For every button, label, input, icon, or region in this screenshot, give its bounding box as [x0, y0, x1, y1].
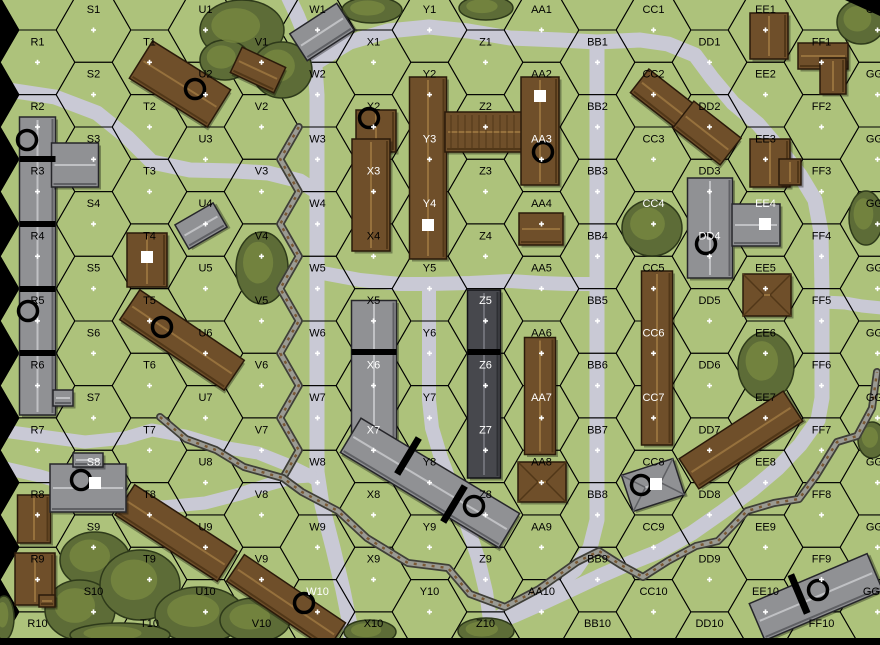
hex-label-X3: X3: [367, 166, 380, 178]
hex-label-EE10: EE10: [752, 586, 779, 598]
hex-label-X7: X7: [367, 424, 380, 436]
hex-label-BB1: BB1: [587, 36, 608, 48]
building-EE5: [743, 274, 794, 319]
hex-map-board[interactable]: R1R2R3R4R5R6R7R8R9R10S1S2S3S4S5S6S7S8S9S…: [0, 0, 880, 645]
hex-label-T5: T5: [143, 295, 156, 307]
hex-label-V5: V5: [255, 295, 268, 307]
hex-label-GG2: GG2: [866, 69, 880, 81]
hex-label-T3: T3: [143, 166, 156, 178]
hex-label-V9: V9: [255, 554, 268, 566]
hex-label-EE5: EE5: [755, 263, 776, 275]
hex-label-CC10: CC10: [639, 586, 667, 598]
hex-label-CC6: CC6: [642, 327, 664, 339]
hex-label-AA8: AA8: [531, 457, 552, 469]
hex-label-T2: T2: [143, 101, 156, 113]
hex-label-V1: V1: [255, 36, 268, 48]
hex-label-FF3: FF3: [812, 166, 832, 178]
hex-label-S5: S5: [87, 263, 100, 275]
hex-label-Z3: Z3: [479, 166, 492, 178]
hex-label-W10: W10: [306, 586, 329, 598]
map-window: R1R2R3R4R5R6R7R8R9R10S1S2S3S4S5S6S7S8S9S…: [0, 0, 880, 645]
building-R8: [18, 495, 54, 546]
rowhouse-wall-bar: [20, 286, 56, 292]
hex-label-Z2: Z2: [479, 101, 492, 113]
hex-label-R3: R3: [30, 166, 44, 178]
hex-label-DD8: DD8: [698, 489, 720, 501]
rowhouse-wall-bar: [20, 156, 56, 162]
hex-label-FF6: FF6: [812, 360, 832, 372]
rowhouse-wall-bar: [352, 349, 397, 355]
hex-label-DD3: DD3: [698, 166, 720, 178]
hex-label-T6: T6: [143, 360, 156, 372]
hex-label-Z10: Z10: [476, 618, 495, 630]
hex-label-FF1: FF1: [812, 36, 832, 48]
hex-label-V2: V2: [255, 101, 268, 113]
hex-label-DD9: DD9: [698, 554, 720, 566]
hex-label-DD6: DD6: [698, 360, 720, 372]
hex-label-DD4: DD4: [698, 230, 720, 242]
hex-label-W4: W4: [309, 198, 326, 210]
rowhouse-wall-bar: [468, 349, 501, 355]
hex-label-Z1: Z1: [479, 36, 492, 48]
hex-label-S3: S3: [87, 133, 100, 145]
building-CC5-CC7: [642, 271, 676, 448]
hex-label-U10: U10: [195, 586, 215, 598]
hex-label-R10: R10: [27, 618, 47, 630]
hex-label-BB4: BB4: [587, 230, 608, 242]
hex-label-DD1: DD1: [698, 36, 720, 48]
hex-label-T10: T10: [140, 618, 159, 630]
hex-label-U5: U5: [198, 263, 212, 275]
hex-label-FF2: FF2: [812, 101, 832, 113]
hex-label-CC7: CC7: [642, 392, 664, 404]
hex-label-FF10: FF10: [809, 618, 835, 630]
hex-label-BB3: BB3: [587, 166, 608, 178]
hex-label-BB8: BB8: [587, 489, 608, 501]
hex-label-T9: T9: [143, 554, 156, 566]
hex-label-U6: U6: [198, 327, 212, 339]
stairwell-marker: [650, 478, 662, 490]
hex-label-T1: T1: [143, 36, 156, 48]
hex-label-BB6: BB6: [587, 360, 608, 372]
hex-label-Z5: Z5: [479, 295, 492, 307]
hex-label-GG7: GG7: [866, 392, 880, 404]
hex-label-AA9: AA9: [531, 521, 552, 533]
hex-label-FF7: FF7: [812, 424, 832, 436]
hex-label-GG6: GG6: [866, 327, 880, 339]
hex-label-U3: U3: [198, 133, 212, 145]
hex-label-DD2: DD2: [698, 101, 720, 113]
hex-label-AA2: AA2: [531, 69, 552, 81]
hex-label-Y3: Y3: [423, 133, 436, 145]
hex-label-CC1: CC1: [642, 4, 664, 16]
hex-label-W2: W2: [309, 69, 326, 81]
hex-label-CC2: CC2: [642, 69, 664, 81]
hex-label-BB9: BB9: [587, 554, 608, 566]
hex-label-DD7: DD7: [698, 424, 720, 436]
hex-label-X2: X2: [367, 101, 380, 113]
hex-label-GG3: GG3: [866, 133, 880, 145]
hex-label-X10: X10: [364, 618, 384, 630]
hex-label-U9: U9: [198, 521, 212, 533]
hex-label-CC3: CC3: [642, 133, 664, 145]
hex-label-Y10: Y10: [420, 586, 440, 598]
hex-label-R1: R1: [30, 36, 44, 48]
hex-label-EE7: EE7: [755, 392, 776, 404]
hex-label-FF4: FF4: [812, 230, 832, 242]
hex-label-V3: V3: [255, 166, 268, 178]
hex-label-Z7: Z7: [479, 424, 492, 436]
hex-label-X6: X6: [367, 360, 380, 372]
hex-label-EE9: EE9: [755, 521, 776, 533]
hex-label-AA6: AA6: [531, 327, 552, 339]
hex-label-S1: S1: [87, 4, 100, 16]
hex-label-AA10: AA10: [528, 586, 555, 598]
hex-label-T4: T4: [143, 230, 156, 242]
hex-label-Y4: Y4: [423, 198, 436, 210]
hex-label-T7: T7: [143, 424, 156, 436]
hex-label-AA1: AA1: [531, 4, 552, 16]
hex-label-X1: X1: [367, 36, 380, 48]
hex-label-DD10: DD10: [695, 618, 723, 630]
hex-label-Z6: Z6: [479, 360, 492, 372]
hex-label-U2: U2: [198, 69, 212, 81]
board-edge-bottom: [0, 638, 880, 645]
hex-label-W8: W8: [309, 457, 326, 469]
hex-label-BB7: BB7: [587, 424, 608, 436]
woods-EE6: [738, 332, 794, 400]
hex-label-R9: R9: [30, 554, 44, 566]
hex-label-W6: W6: [309, 327, 326, 339]
hex-label-S8: S8: [87, 457, 100, 469]
hex-label-X9: X9: [367, 554, 380, 566]
woods-X1: [342, 0, 402, 23]
hex-label-EE1: EE1: [755, 4, 776, 16]
hex-label-Y2: Y2: [423, 69, 436, 81]
hex-label-X8: X8: [367, 489, 380, 501]
hex-label-GG9: GG9: [866, 521, 880, 533]
hex-label-BB2: BB2: [587, 101, 608, 113]
hex-label-S9: S9: [87, 521, 100, 533]
hex-label-Y7: Y7: [423, 392, 436, 404]
hex-label-DD5: DD5: [698, 295, 720, 307]
hex-label-EE8: EE8: [755, 457, 776, 469]
hex-label-Y1: Y1: [423, 4, 436, 16]
hex-label-EE2: EE2: [755, 69, 776, 81]
hex-label-S2: S2: [87, 69, 100, 81]
hex-label-CC8: CC8: [642, 457, 664, 469]
hex-label-EE6: EE6: [755, 327, 776, 339]
stairwell-marker: [534, 90, 546, 102]
rowhouse-wall-bar: [20, 350, 56, 356]
hex-label-S4: S4: [87, 198, 100, 210]
hex-label-R5: R5: [30, 295, 44, 307]
hex-label-R6: R6: [30, 360, 44, 372]
hex-label-AA3: AA3: [531, 133, 552, 145]
hex-label-GG8: GG8: [866, 457, 880, 469]
hex-label-GG10: GG10: [863, 586, 880, 598]
hex-label-V8: V8: [255, 489, 268, 501]
hex-label-W1: W1: [309, 4, 326, 16]
hex-label-FF9: FF9: [812, 554, 832, 566]
hex-label-AA5: AA5: [531, 263, 552, 275]
woods-Q10: [0, 596, 14, 640]
hex-label-AA4: AA4: [531, 198, 552, 210]
hex-label-W5: W5: [309, 263, 326, 275]
hex-label-S6: S6: [87, 327, 100, 339]
hex-label-X4: X4: [367, 230, 380, 242]
hex-label-V7: V7: [255, 424, 268, 436]
hex-label-Z4: Z4: [479, 230, 492, 242]
hex-label-Z8: Z8: [479, 489, 492, 501]
rowhouse-wall-bar: [20, 221, 56, 227]
hex-label-U4: U4: [198, 198, 212, 210]
hex-label-U8: U8: [198, 457, 212, 469]
hex-label-AA7: AA7: [531, 392, 552, 404]
hex-label-GG5: GG5: [866, 263, 880, 275]
hex-label-BB5: BB5: [587, 295, 608, 307]
hex-label-Y9: Y9: [423, 521, 436, 533]
building-EE1: [750, 13, 791, 62]
hex-label-R7: R7: [30, 424, 44, 436]
hex-label-W9: W9: [309, 521, 326, 533]
woods-Z1: [459, 0, 513, 20]
hex-label-W3: W3: [309, 133, 326, 145]
hex-label-Z9: Z9: [479, 554, 492, 566]
hex-label-W7: W7: [309, 392, 326, 404]
hex-label-EE4: EE4: [755, 198, 776, 210]
hex-label-V4: V4: [255, 230, 268, 242]
hex-label-V10: V10: [252, 618, 272, 630]
hex-label-S10: S10: [84, 586, 104, 598]
hex-label-R8: R8: [30, 489, 44, 501]
hex-label-GG4: GG4: [866, 198, 880, 210]
hex-label-CC9: CC9: [642, 521, 664, 533]
hex-label-FF8: FF8: [812, 489, 832, 501]
hex-label-EE3: EE3: [755, 133, 776, 145]
hex-label-X5: X5: [367, 295, 380, 307]
hex-label-CC4: CC4: [642, 198, 664, 210]
hex-label-U7: U7: [198, 392, 212, 404]
hex-label-Y8: Y8: [423, 457, 436, 469]
hex-label-CC5: CC5: [642, 263, 664, 275]
hex-label-Y5: Y5: [423, 263, 436, 275]
hex-label-U1: U1: [198, 4, 212, 16]
hex-label-T8: T8: [143, 489, 156, 501]
hex-label-R2: R2: [30, 101, 44, 113]
hex-label-Y6: Y6: [423, 327, 436, 339]
hex-label-BB10: BB10: [584, 618, 611, 630]
building-AA4: [519, 213, 566, 248]
stairwell-marker: [422, 219, 434, 231]
hex-label-S7: S7: [87, 392, 100, 404]
hex-label-FF5: FF5: [812, 295, 832, 307]
hex-label-R4: R4: [30, 230, 44, 242]
hex-label-V6: V6: [255, 360, 268, 372]
